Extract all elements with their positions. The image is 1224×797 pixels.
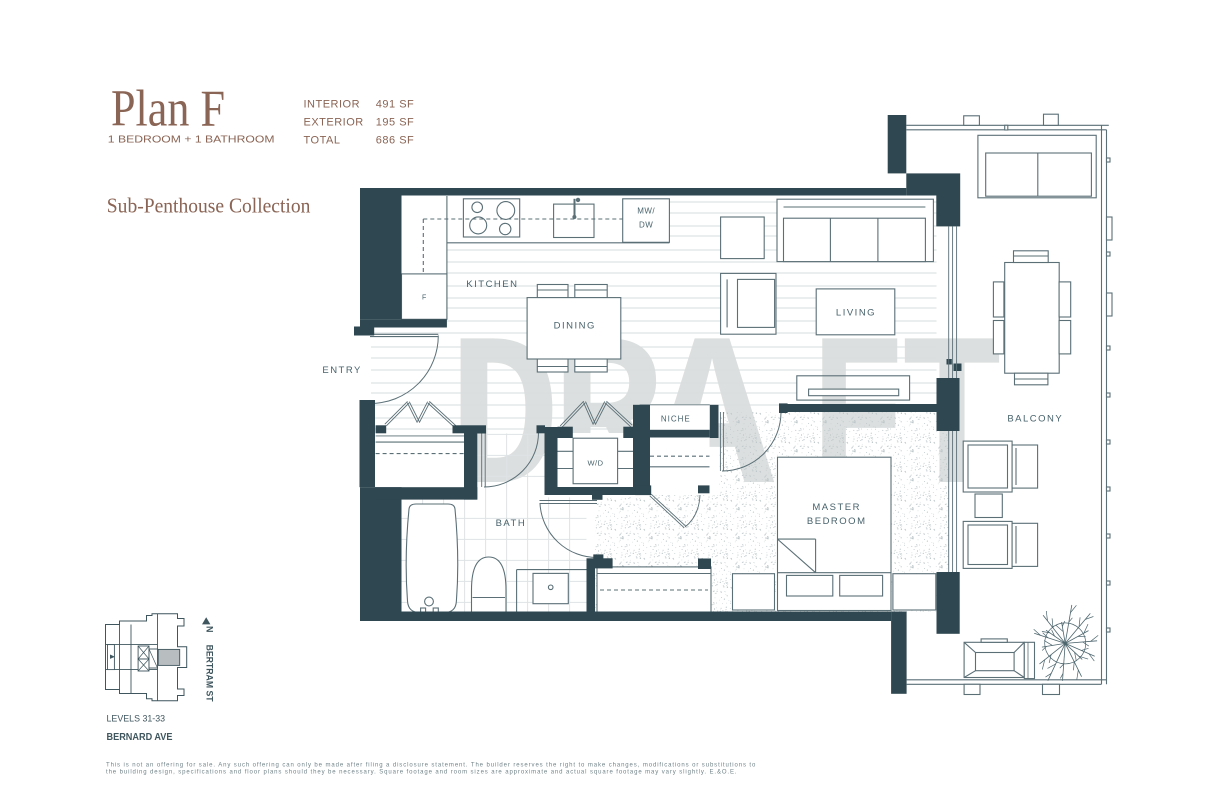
svg-text:BATH: BATH [496,518,527,529]
svg-text:491 SF: 491 SF [376,99,414,111]
svg-text:F: F [422,295,426,302]
svg-text:TOTAL: TOTAL [304,134,341,146]
svg-text:686 SF: 686 SF [376,134,414,146]
svg-text:1 BEDROOM + 1 BATHROOM: 1 BEDROOM + 1 BATHROOM [108,133,275,145]
svg-text:Plan F: Plan F [111,81,225,138]
svg-text:INTERIOR: INTERIOR [304,99,361,111]
svg-text:MW/: MW/ [637,207,655,216]
svg-text:BALCONY: BALCONY [1007,414,1063,425]
svg-text:the building design, specifica: the building design, specifications and … [106,770,737,776]
svg-text:BEDROOM: BEDROOM [807,516,867,527]
svg-text:KITCHEN: KITCHEN [466,279,518,290]
svg-text:ENTRY: ENTRY [322,365,362,376]
svg-text:LEVELS 31-33: LEVELS 31-33 [107,714,166,725]
svg-text:MASTER: MASTER [812,502,861,513]
svg-text:DINING: DINING [554,320,596,331]
svg-text:BERTRAM ST: BERTRAM ST [205,645,215,703]
svg-text:EXTERIOR: EXTERIOR [304,116,364,128]
svg-text:N: N [205,626,215,633]
svg-text:NICHE: NICHE [661,415,691,424]
svg-text:Sub-Penthouse Collection: Sub-Penthouse Collection [107,194,311,218]
svg-text:BERNARD AVE: BERNARD AVE [107,731,173,743]
svg-text:W/D: W/D [587,458,603,467]
svg-text:195 SF: 195 SF [376,116,414,128]
svg-text:DW: DW [639,221,653,230]
svg-text:This is not an offering for sa: This is not an offering for sale. Any su… [106,763,756,769]
svg-text:LIVING: LIVING [836,308,876,319]
